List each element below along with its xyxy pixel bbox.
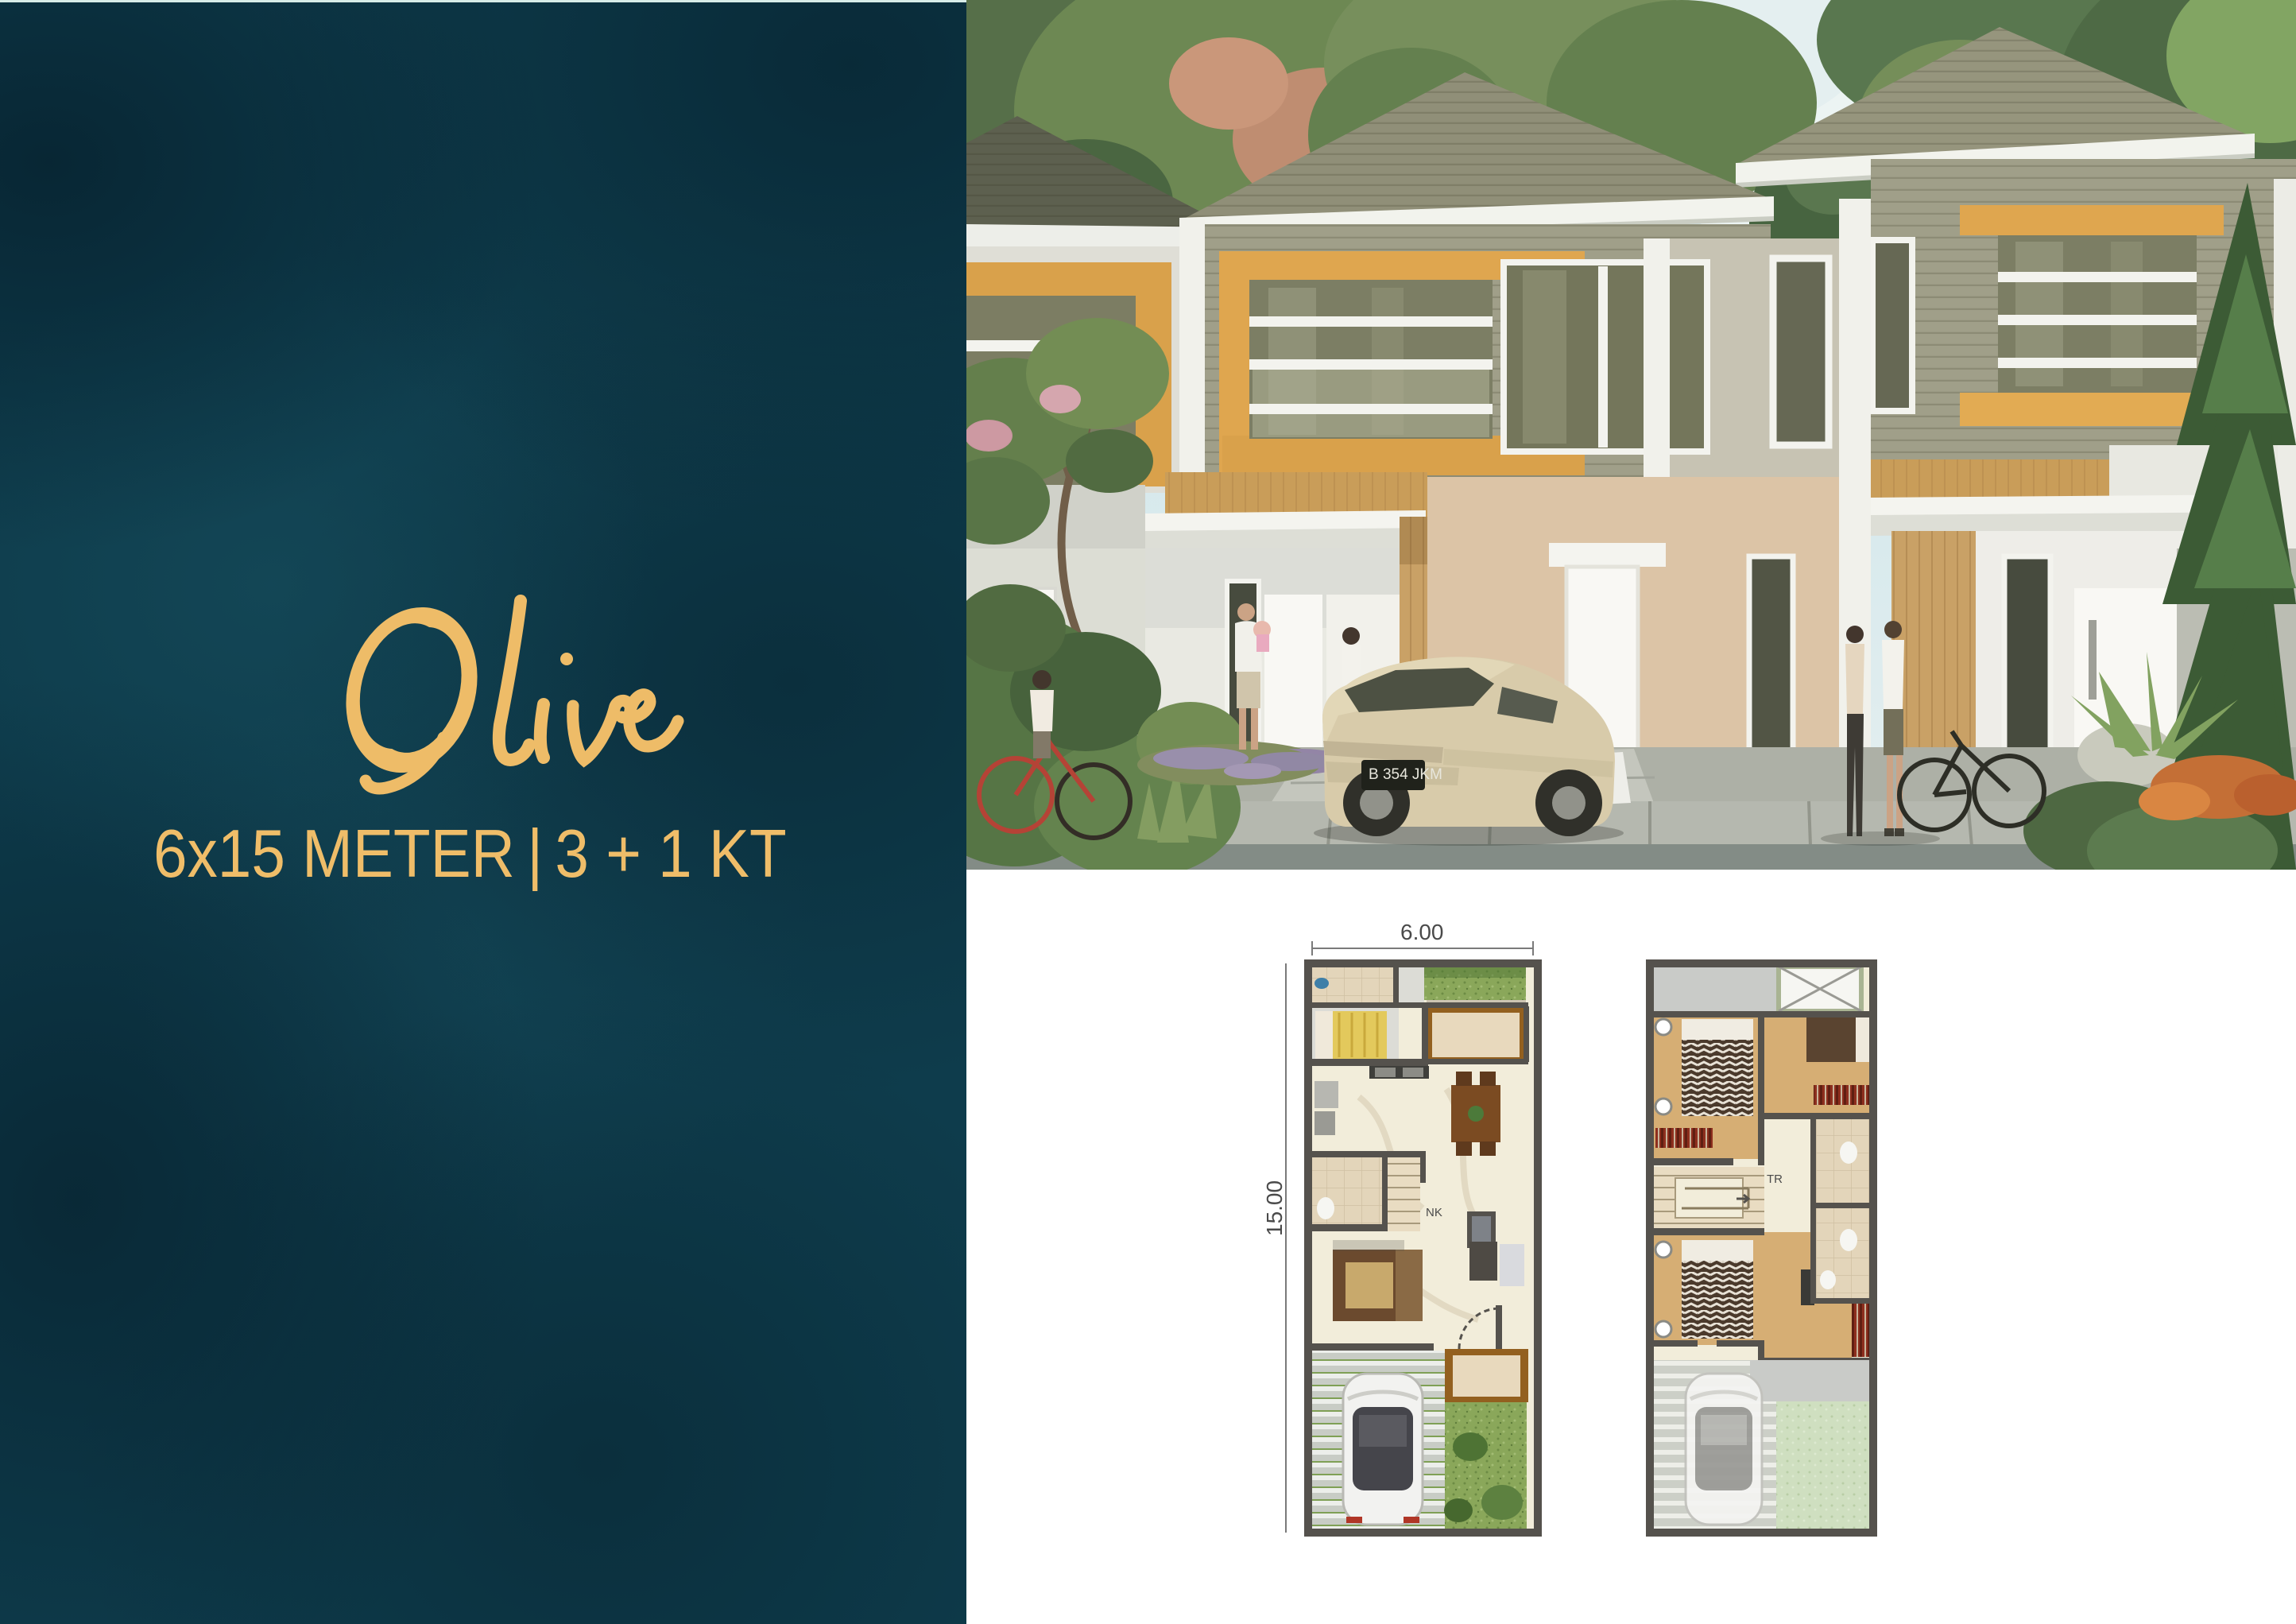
svg-text:15.00: 15.00 <box>1262 1180 1287 1236</box>
svg-text:TR: TR <box>1767 1172 1783 1186</box>
svg-text:6.00: 6.00 <box>1400 920 1444 944</box>
svg-text:NK: NK <box>1426 1206 1442 1219</box>
